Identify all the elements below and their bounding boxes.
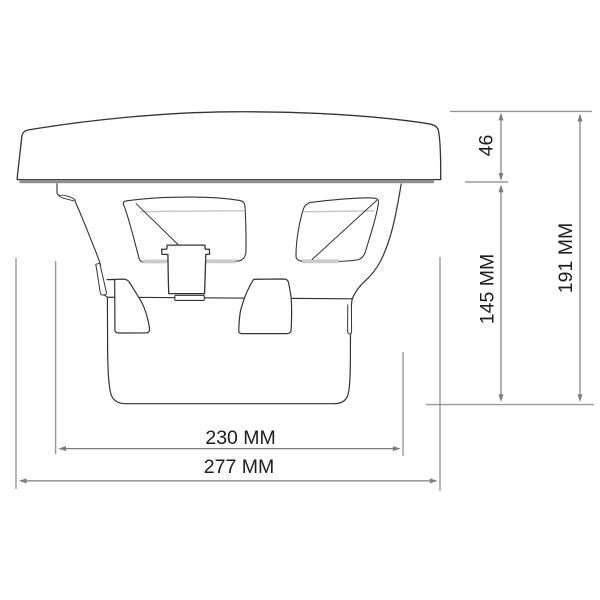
svg-text:191 MM: 191 MM [555, 223, 577, 293]
svg-text:277 MM: 277 MM [204, 456, 274, 478]
svg-text:230 MM: 230 MM [205, 427, 275, 449]
svg-text:46: 46 [476, 135, 498, 157]
svg-text:145 MM: 145 MM [477, 254, 499, 324]
